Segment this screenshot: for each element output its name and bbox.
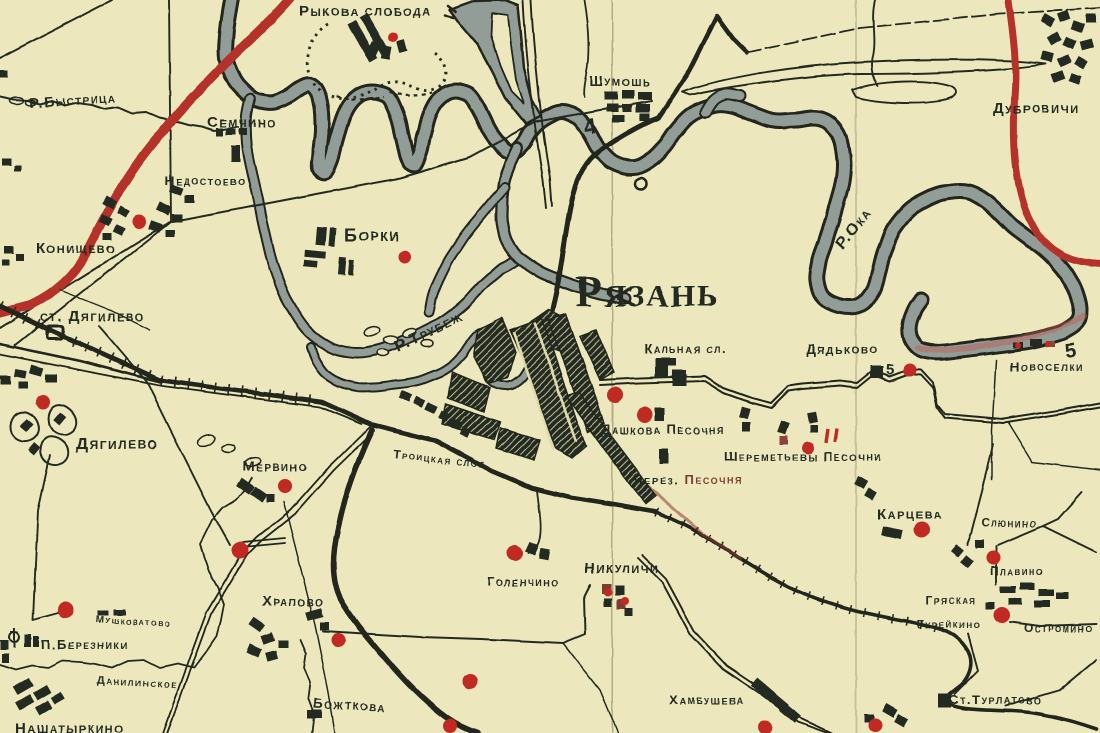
svg-text:Карцева: Карцева [877,506,943,523]
svg-text:Никуличи: Никуличи [584,560,659,577]
svg-text:Нашатыркино: Нашатыркино [15,720,125,733]
svg-text:Рязань: Рязань [575,267,720,316]
svg-text:Дядьково: Дядьково [806,341,878,357]
svg-text:Новоселки: Новоселки [1010,359,1084,374]
svg-text:П.Березники: П.Березники [41,637,128,652]
svg-text:Недостоево: Недостоево [165,173,247,188]
svg-text:Ст.Турлатово: Ст.Турлатово [949,692,1042,707]
svg-text:Борки: Борки [344,225,401,245]
svg-text:Конищево: Конищево [36,240,116,257]
svg-text:Через. Песочня: Через. Песочня [634,472,743,487]
svg-text:Шереметьевы Песочни: Шереметьевы Песочни [724,449,882,464]
svg-text:Дубровичи: Дубровичи [993,100,1079,117]
svg-text:Дягилево: Дягилево [76,434,158,453]
svg-text:Плавино: Плавино [990,564,1044,578]
svg-text:Рыкова слобода: Рыкова слобода [299,3,432,20]
svg-text:Хамбушева: Хамбушева [669,692,745,707]
svg-text:Слюнино: Слюнино [981,516,1038,530]
svg-text:Шумошь: Шумошь [589,73,652,89]
svg-text:Голенчино: Голенчино [487,574,560,589]
svg-text:Семчино: Семчино [207,114,277,131]
svg-text:Гурейкино: Гурейкино [917,617,981,631]
svg-text:Дашкова Песочня: Дашкова Песочня [601,422,725,437]
svg-text:Остромино: Остромино [1024,621,1093,635]
svg-text:5: 5 [886,361,894,378]
svg-text:Мервино: Мервино [243,458,308,474]
svg-text:ст. Дягилево: ст. Дягилево [40,308,145,325]
svg-text:Храпово: Храпово [262,593,324,609]
svg-text:Кальная сл.: Кальная сл. [644,341,727,356]
svg-text:Гряская: Гряская [926,593,976,607]
